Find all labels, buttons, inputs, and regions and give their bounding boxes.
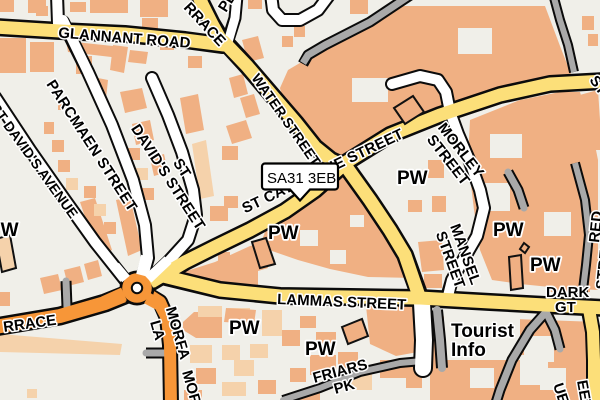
svg-text:PW: PW	[0, 220, 19, 241]
svg-text:Info: Info	[451, 340, 486, 361]
svg-text:PW: PW	[229, 318, 260, 339]
svg-text:PW: PW	[305, 339, 336, 360]
svg-text:RED: RED	[586, 210, 600, 243]
svg-text:Tourist: Tourist	[451, 321, 515, 342]
svg-text:PW: PW	[530, 255, 561, 276]
svg-text:SA31 3EB: SA31 3EB	[267, 170, 336, 187]
svg-text:PW: PW	[493, 220, 524, 241]
svg-text:GT: GT	[555, 299, 576, 316]
svg-text:PW: PW	[268, 223, 299, 244]
svg-text:PW: PW	[397, 168, 428, 189]
